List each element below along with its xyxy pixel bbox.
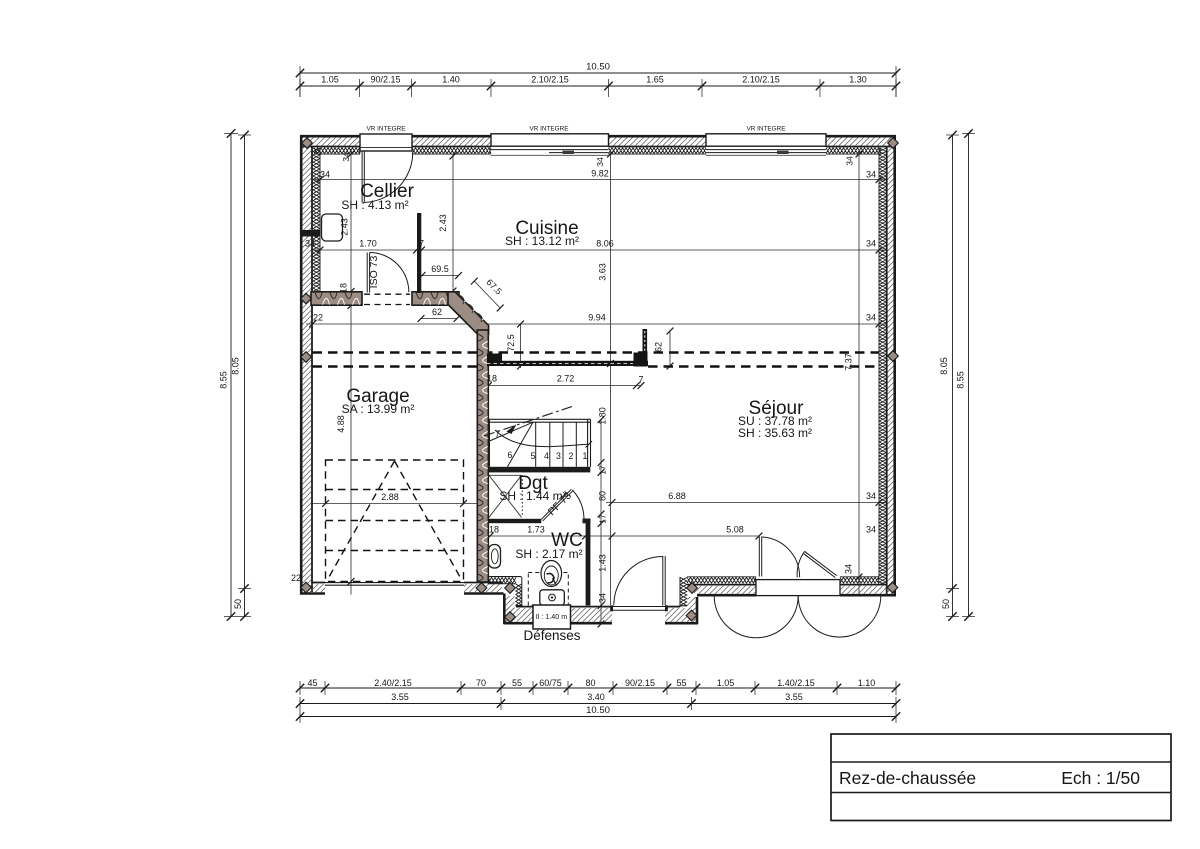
svg-text:1.30: 1.30 — [849, 75, 867, 85]
svg-text:SH : 2.17 m²: SH : 2.17 m² — [515, 547, 582, 561]
svg-text:7: 7 — [419, 239, 424, 249]
svg-text:2: 2 — [569, 451, 574, 461]
svg-text:1.43: 1.43 — [598, 554, 608, 572]
svg-text:6.88: 6.88 — [668, 491, 686, 501]
svg-text:1.10: 1.10 — [858, 678, 876, 688]
svg-text:VR INTEGRE: VR INTEGRE — [366, 126, 405, 133]
svg-text:34: 34 — [305, 239, 315, 249]
svg-text:VR INTEGRE: VR INTEGRE — [529, 126, 568, 133]
svg-text:34: 34 — [866, 491, 876, 501]
svg-text:Rez-de-chaussée: Rez-de-chaussée — [839, 768, 976, 788]
svg-text:8.05: 8.05 — [939, 357, 949, 375]
svg-text:3.55: 3.55 — [391, 692, 409, 702]
svg-text:34: 34 — [844, 564, 854, 574]
svg-text:62: 62 — [654, 342, 664, 352]
svg-text:17: 17 — [598, 465, 608, 475]
svg-text:90/2.15: 90/2.15 — [370, 75, 400, 85]
svg-text:2.88: 2.88 — [381, 492, 399, 502]
svg-text:Ech : 1/50: Ech : 1/50 — [1061, 768, 1140, 788]
svg-text:1.40: 1.40 — [442, 75, 460, 85]
svg-text:SA : 13.99 m²: SA : 13.99 m² — [342, 402, 415, 416]
svg-text:34: 34 — [866, 239, 876, 249]
svg-text:7.37: 7.37 — [844, 353, 854, 371]
svg-text:72.5: 72.5 — [506, 334, 516, 352]
svg-text:8.05: 8.05 — [231, 357, 241, 375]
svg-text:2.43: 2.43 — [438, 214, 448, 232]
svg-text:34: 34 — [595, 157, 605, 167]
svg-text:22: 22 — [313, 313, 323, 323]
svg-text:34: 34 — [845, 156, 855, 166]
svg-text:SH : 4.13 m²: SH : 4.13 m² — [341, 198, 408, 212]
svg-text:8.55: 8.55 — [956, 371, 966, 389]
svg-text:34: 34 — [866, 525, 876, 535]
svg-text:1: 1 — [583, 451, 588, 461]
svg-text:50: 50 — [941, 599, 951, 609]
svg-text:22: 22 — [291, 573, 301, 583]
svg-text:5.08: 5.08 — [726, 525, 744, 535]
svg-text:7: 7 — [495, 429, 500, 439]
svg-text:8.55: 8.55 — [219, 371, 229, 389]
svg-text:18: 18 — [487, 374, 497, 384]
svg-text:50: 50 — [233, 599, 243, 609]
svg-text:1.73: 1.73 — [527, 525, 545, 535]
svg-text:69.5: 69.5 — [431, 264, 449, 274]
svg-text:34: 34 — [320, 170, 330, 180]
svg-text:55: 55 — [512, 678, 522, 688]
svg-text:18: 18 — [489, 525, 499, 535]
svg-text:10.50: 10.50 — [586, 62, 610, 73]
svg-text:2.43: 2.43 — [340, 218, 350, 236]
svg-text:4: 4 — [544, 451, 549, 461]
svg-text:3.63: 3.63 — [598, 263, 608, 281]
svg-text:10.50: 10.50 — [586, 705, 610, 716]
svg-text:5: 5 — [531, 451, 536, 461]
svg-text:70: 70 — [476, 678, 486, 688]
svg-text:34: 34 — [866, 170, 876, 180]
svg-text:ISO 73: ISO 73 — [368, 255, 380, 288]
svg-text:60/75: 60/75 — [539, 678, 562, 688]
svg-text:SH : 13.12 m²: SH : 13.12 m² — [505, 234, 579, 248]
svg-text:1.70: 1.70 — [359, 239, 377, 249]
svg-text:9.82: 9.82 — [591, 169, 609, 179]
svg-text:4.88: 4.88 — [336, 415, 346, 433]
svg-text:2.40/2.15: 2.40/2.15 — [374, 678, 412, 688]
svg-text:55: 55 — [676, 678, 686, 688]
svg-text:3.55: 3.55 — [785, 692, 803, 702]
svg-text:2.10/2.15: 2.10/2.15 — [742, 75, 780, 85]
svg-text:9.94: 9.94 — [588, 313, 606, 323]
svg-text:SH : 1.44 m²: SH : 1.44 m² — [499, 489, 566, 503]
svg-text:34: 34 — [866, 313, 876, 323]
svg-text:1.65: 1.65 — [646, 75, 664, 85]
svg-text:1.05: 1.05 — [321, 75, 339, 85]
svg-text:34: 34 — [341, 152, 351, 162]
svg-text:90/2.15: 90/2.15 — [625, 678, 655, 688]
svg-text:80: 80 — [585, 678, 595, 688]
svg-text:1.05: 1.05 — [717, 678, 735, 688]
svg-text:1.40/2.15: 1.40/2.15 — [777, 678, 815, 688]
svg-text:3.40: 3.40 — [587, 692, 605, 702]
svg-text:62: 62 — [432, 307, 442, 317]
svg-text:VR INTEGRE: VR INTEGRE — [746, 126, 785, 133]
svg-text:6: 6 — [508, 450, 513, 460]
svg-text:34: 34 — [598, 593, 608, 603]
svg-text:17: 17 — [598, 514, 608, 524]
svg-text:80: 80 — [598, 491, 608, 501]
svg-text:Défenses: Défenses — [523, 628, 580, 643]
svg-text:SH : 35.63 m²: SH : 35.63 m² — [738, 426, 812, 440]
svg-text:18: 18 — [339, 283, 349, 293]
svg-text:2.10/2.15: 2.10/2.15 — [531, 75, 569, 85]
svg-text:7: 7 — [638, 375, 643, 385]
svg-text:Il : 1.40 m: Il : 1.40 m — [536, 612, 568, 621]
svg-text:45: 45 — [307, 678, 317, 688]
svg-text:8.06: 8.06 — [596, 239, 614, 249]
svg-text:3: 3 — [556, 451, 561, 461]
svg-text:2.72: 2.72 — [557, 374, 575, 384]
svg-text:1.80: 1.80 — [598, 407, 608, 425]
